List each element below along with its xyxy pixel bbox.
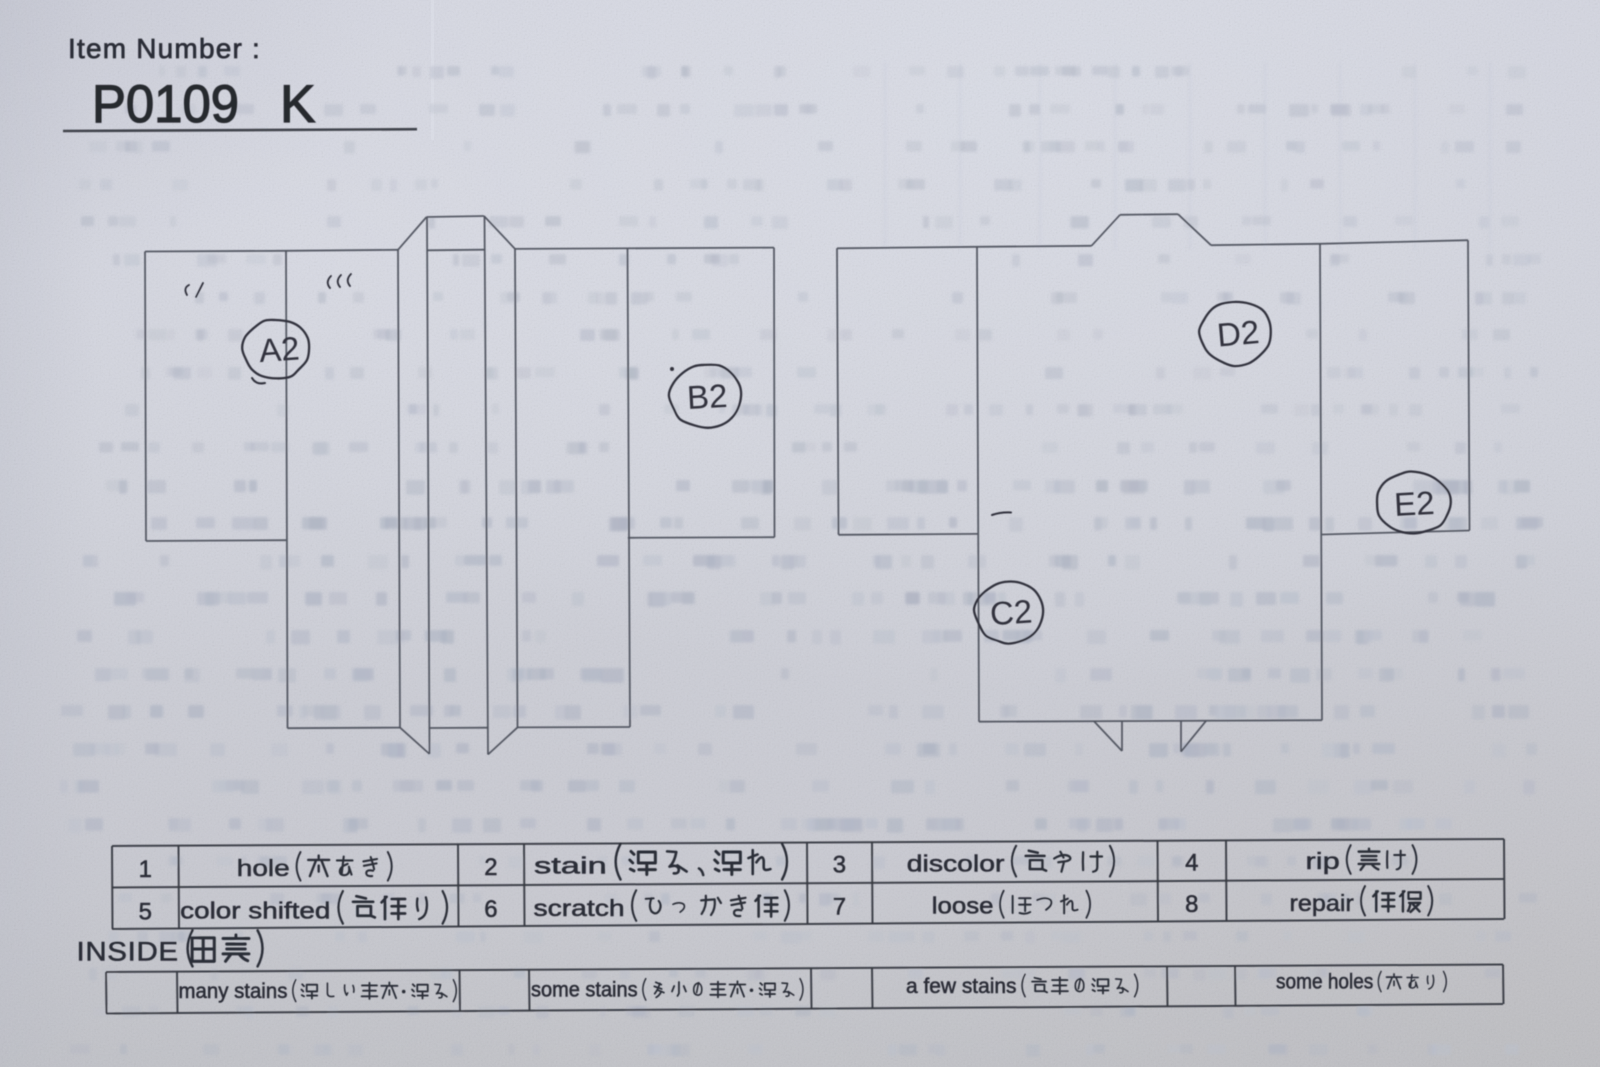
svg-text:5: 5 — [139, 899, 152, 926]
svg-text:B2: B2 — [686, 377, 728, 416]
svg-text:many stains: many stains — [179, 980, 288, 1003]
svg-text:some stains: some stains — [531, 979, 638, 1002]
svg-text:repair: repair — [1290, 890, 1355, 916]
svg-text:scratch: scratch — [534, 895, 625, 921]
svg-text:Item Number :: Item Number : — [68, 33, 261, 64]
svg-text:color shifted: color shifted — [180, 897, 330, 923]
svg-text:discolor: discolor — [907, 851, 1005, 877]
svg-text:some holes: some holes — [1276, 971, 1373, 994]
svg-text:INSIDE: INSIDE — [77, 937, 179, 967]
svg-text:A2: A2 — [258, 329, 301, 369]
svg-text:loose: loose — [932, 892, 994, 918]
svg-text:hole: hole — [237, 855, 290, 881]
svg-text:2: 2 — [484, 854, 497, 881]
svg-text:rip: rip — [1306, 848, 1340, 874]
svg-text:6: 6 — [484, 896, 497, 923]
svg-text:C2: C2 — [989, 592, 1034, 632]
svg-text:a few stains: a few stains — [906, 975, 1017, 998]
svg-text:E2: E2 — [1393, 484, 1435, 523]
svg-text:7: 7 — [833, 894, 846, 921]
svg-text:stain: stain — [534, 853, 607, 879]
svg-text:4: 4 — [1185, 849, 1198, 876]
svg-text:8: 8 — [1185, 891, 1198, 918]
svg-text:P0109: P0109 — [92, 75, 239, 134]
svg-text:1: 1 — [139, 856, 152, 883]
svg-text:D2: D2 — [1216, 313, 1261, 354]
svg-text:3: 3 — [833, 852, 846, 879]
svg-text:K: K — [280, 75, 315, 134]
